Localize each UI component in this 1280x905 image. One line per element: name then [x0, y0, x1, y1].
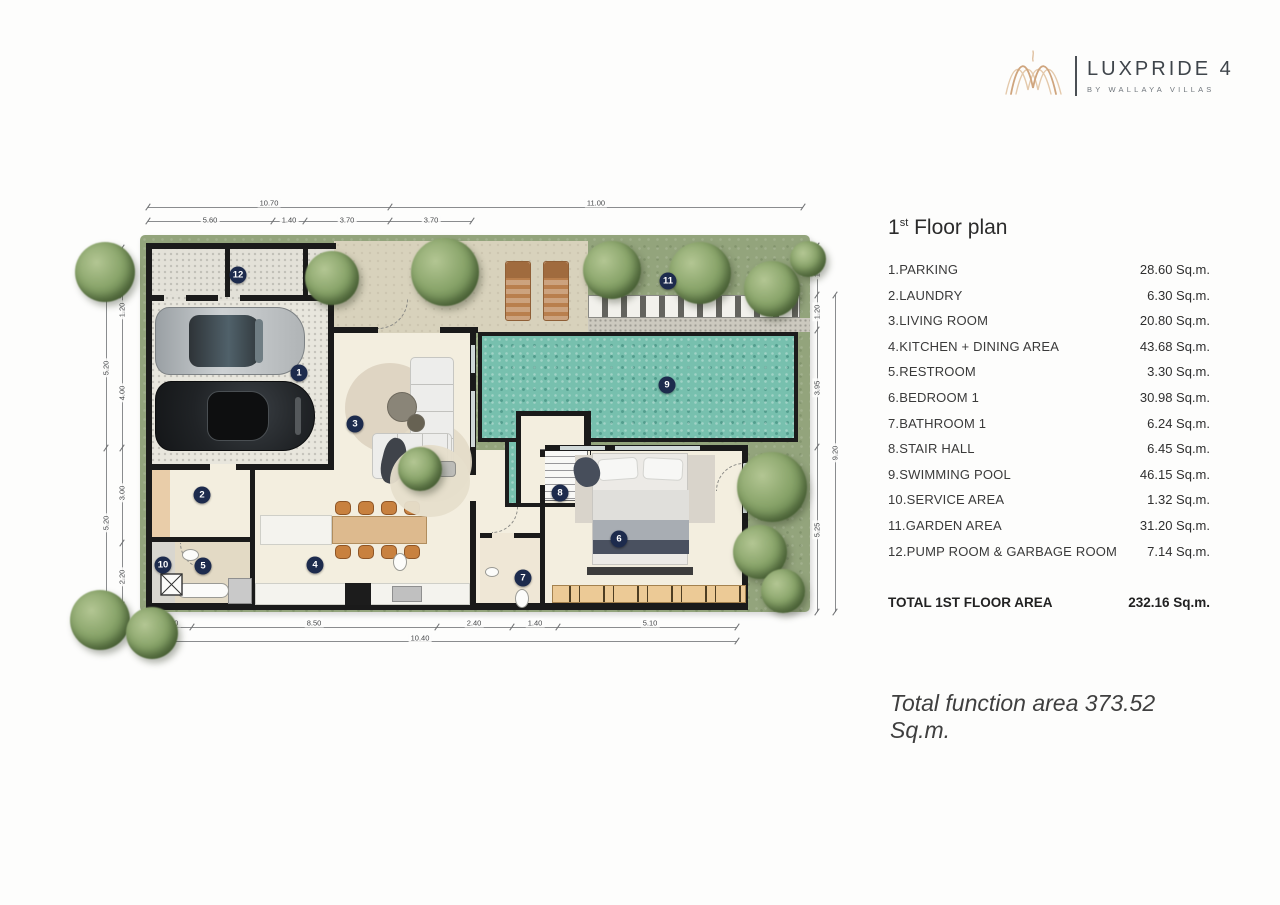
dimension-label: 3.70	[422, 216, 441, 225]
page-title: 1st Floor plan	[888, 216, 1210, 240]
total-function-area: Total function area 373.52 Sq.m.	[890, 690, 1210, 744]
room-marker-11: 11	[660, 273, 677, 290]
legend-room-area: 30.98 Sq.m.	[1140, 390, 1210, 405]
legend-row: 1.PARKING28.60 Sq.m.	[888, 262, 1210, 288]
bathroom-sink	[485, 567, 499, 577]
door-gap	[540, 457, 545, 485]
tree	[126, 607, 178, 659]
dimension-label: 1.40	[526, 619, 545, 628]
dining-chair	[404, 545, 420, 559]
dimension-label: 3.70	[338, 216, 357, 225]
legend-room-area: 28.60 Sq.m.	[1140, 262, 1210, 277]
legend-room-area: 43.68 Sq.m.	[1140, 339, 1210, 354]
dining-chair	[335, 545, 351, 559]
room-marker-3: 3	[347, 416, 364, 433]
dimension-label: 11.00	[585, 199, 607, 208]
legend-room-area: 6.45 Sq.m.	[1147, 441, 1210, 456]
legend-room-name: 7.BATHROOM 1	[888, 416, 986, 431]
wardrobe	[552, 585, 746, 603]
dimension-line	[817, 246, 818, 612]
dimension-label: 8.50	[305, 619, 324, 628]
tree	[761, 569, 805, 613]
dining-chair	[335, 501, 351, 515]
legend-panel: 1st Floor plan 1.PARKING28.60 Sq.m.2.LAU…	[888, 216, 1210, 610]
legend-row: 3.LIVING ROOM20.80 Sq.m.	[888, 313, 1210, 339]
total-label: TOTAL 1ST FLOOR AREA	[888, 595, 1053, 610]
tree	[305, 251, 359, 305]
bed-bench	[587, 567, 693, 575]
legend-row: 6.BEDROOM 130.98 Sq.m.	[888, 390, 1210, 416]
total-area: 232.16 Sq.m.	[1128, 595, 1210, 610]
legend-room-name: 11.GARDEN AREA	[888, 518, 1002, 533]
dimension-label: 10.40	[409, 634, 432, 643]
logo-divider	[1075, 56, 1077, 96]
dimension-label: 4.00	[118, 384, 127, 403]
window	[615, 446, 700, 450]
tree	[75, 242, 135, 302]
legend-room-name: 2.LAUNDRY	[888, 288, 963, 303]
wall	[148, 537, 255, 542]
brand-subtitle: BY WALLAYA VILLAS	[1087, 85, 1234, 94]
dimension-label: 5.20	[102, 359, 111, 378]
brand-name: LUXPRIDE 4	[1087, 58, 1234, 81]
wall	[250, 470, 255, 540]
legend-row: 5.RESTROOM3.30 Sq.m.	[888, 364, 1210, 390]
dimension-line	[148, 207, 803, 208]
legend-row: 7.BATHROOM 16.24 Sq.m.	[888, 416, 1210, 442]
dining-table	[332, 516, 427, 544]
legend-row: 9.SWIMMING POOL46.15 Sq.m.	[888, 467, 1210, 493]
legend-room-name: 1.PARKING	[888, 262, 958, 277]
dimension-tick	[800, 203, 805, 210]
dimension-tick	[832, 608, 837, 615]
legend-room-name: 12.PUMP ROOM & GARBAGE ROOM	[888, 544, 1117, 559]
room-marker-12: 12	[230, 267, 247, 284]
dimension-label: 2.40	[465, 619, 484, 628]
door-gap	[378, 327, 440, 333]
car-black	[155, 381, 315, 451]
kitchen-island	[260, 515, 332, 545]
laundry-wood-strip	[150, 468, 170, 540]
dimension-label: 5.20	[102, 514, 111, 533]
room-marker-5: 5	[195, 558, 212, 575]
door-gap	[164, 295, 186, 301]
car-silver	[155, 307, 305, 375]
legend-room-name: 4.KITCHEN + DINING AREA	[888, 339, 1059, 354]
room-marker-1: 1	[291, 365, 308, 382]
dimension-tick	[734, 623, 739, 630]
legend-room-name: 6.BEDROOM 1	[888, 390, 979, 405]
window	[560, 446, 605, 450]
gravel-strip	[588, 318, 810, 332]
room-marker-4: 4	[307, 557, 324, 574]
dimension-tick	[469, 217, 474, 224]
tree	[669, 242, 731, 304]
legend-room-area: 6.24 Sq.m.	[1147, 416, 1210, 431]
floor-plan-drawing: 10.7011.005.601.403.703.701.408.502.401.…	[60, 195, 872, 670]
legend-row: 10.SERVICE AREA1.32 Sq.m.	[888, 492, 1210, 518]
floor-plan-page: LUXPRIDE 4 BY WALLAYA VILLAS 1st Floor p…	[0, 0, 1280, 905]
legend-row: 12.PUMP ROOM & GARBAGE ROOM7.14 Sq.m.	[888, 544, 1210, 570]
door-gap	[210, 464, 236, 470]
legend-room-name: 9.SWIMMING POOL	[888, 467, 1011, 482]
door-gap	[492, 533, 514, 538]
fridge	[228, 578, 252, 604]
pool-lounger	[543, 261, 569, 321]
kitchen-sink	[392, 586, 422, 602]
dimension-label: 1.20	[118, 301, 127, 320]
legend-room-name: 5.RESTROOM	[888, 364, 976, 379]
room-marker-9: 9	[659, 377, 676, 394]
legend-room-area: 3.30 Sq.m.	[1147, 364, 1210, 379]
tree	[411, 238, 479, 306]
tree	[70, 590, 130, 650]
legend-room-area: 1.32 Sq.m.	[1147, 492, 1210, 507]
tree	[583, 241, 641, 299]
legend-room-area: 6.30 Sq.m.	[1147, 288, 1210, 303]
wall	[328, 295, 334, 470]
wallaya-wave-icon	[1003, 48, 1065, 104]
dimension-label: 5.60	[201, 216, 220, 225]
room-marker-7: 7	[515, 570, 532, 587]
dining-chair	[381, 501, 397, 515]
legend-room-name: 3.LIVING ROOM	[888, 313, 988, 328]
dimension-label: 3.95	[813, 379, 822, 398]
dining-chair	[358, 545, 374, 559]
legend-list: 1.PARKING28.60 Sq.m.2.LAUNDRY6.30 Sq.m.3…	[888, 262, 1210, 569]
stair-wall	[584, 411, 591, 447]
wall	[148, 464, 334, 470]
legend-row: 2.LAUNDRY6.30 Sq.m.	[888, 288, 1210, 314]
dimension-tick	[814, 608, 819, 615]
room-marker-2: 2	[194, 487, 211, 504]
legend-room-area: 31.20 Sq.m.	[1140, 518, 1210, 533]
room-marker-8: 8	[552, 485, 569, 502]
toilet	[393, 553, 407, 571]
legend-row: 4.KITCHEN + DINING AREA43.68 Sq.m.	[888, 339, 1210, 365]
restroom-toilet	[177, 583, 229, 598]
dimension-label: 1.40	[280, 216, 299, 225]
dining-chair	[358, 501, 374, 515]
window	[471, 391, 475, 447]
tree	[790, 241, 826, 277]
legend-row: 8.STAIR HALL6.45 Sq.m.	[888, 441, 1210, 467]
stove	[345, 583, 371, 605]
logo: LUXPRIDE 4 BY WALLAYA VILLAS	[1003, 48, 1234, 104]
legend-room-name: 8.STAIR HALL	[888, 441, 975, 456]
pool-lounger	[505, 261, 531, 321]
dimension-tick	[734, 637, 739, 644]
dimension-label: 1.20	[813, 303, 822, 322]
tree	[737, 452, 807, 522]
dimension-line	[150, 641, 737, 642]
legend-room-name: 10.SERVICE AREA	[888, 492, 1004, 507]
legend-room-area: 46.15 Sq.m.	[1140, 467, 1210, 482]
dimension-label: 2.20	[118, 568, 127, 587]
dimension-label: 10.70	[258, 199, 281, 208]
door-gap	[470, 475, 476, 501]
bed	[592, 453, 688, 565]
room-marker-10: 10	[155, 557, 172, 574]
tree	[398, 447, 442, 491]
dimension-label: 5.25	[813, 521, 822, 540]
legend-row: 11.GARDEN AREA31.20 Sq.m.	[888, 518, 1210, 544]
wall	[146, 243, 152, 608]
window	[471, 345, 475, 373]
legend-room-area: 7.14 Sq.m.	[1147, 544, 1210, 559]
legend-room-area: 20.80 Sq.m.	[1140, 313, 1210, 328]
bathroom-toilet	[515, 589, 529, 608]
room-marker-6: 6	[611, 531, 628, 548]
total-row: TOTAL 1ST FLOOR AREA 232.16 Sq.m.	[888, 595, 1210, 610]
dimension-label: 5.10	[641, 619, 660, 628]
washing-machine-icon	[160, 573, 183, 596]
tree	[744, 261, 800, 317]
side-table	[407, 414, 425, 432]
dimension-label: 3.00	[118, 484, 127, 503]
dimension-label: 9.20	[831, 444, 840, 463]
